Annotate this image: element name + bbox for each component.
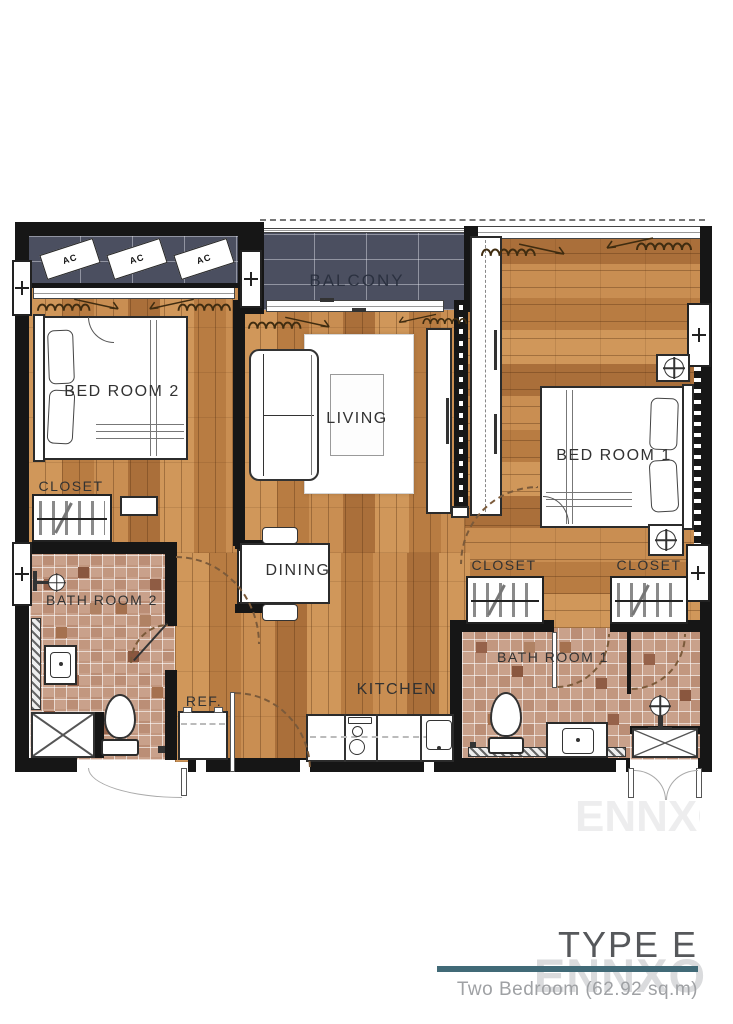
wall (15, 222, 245, 236)
curtain-icon (247, 314, 333, 334)
roof-overhang-dashed-line (260, 219, 705, 221)
wall (165, 670, 177, 760)
wardrobe (32, 494, 112, 542)
room-label-bedroom2: BED ROOM 2 (64, 383, 179, 401)
column-marker-icon (240, 250, 262, 308)
wall (28, 283, 242, 288)
pillow (649, 398, 679, 451)
room-label-bathroom1: BATH ROOM 1 (497, 649, 609, 665)
faucet-dot (437, 746, 441, 750)
wall (233, 300, 245, 546)
lamp-icon (656, 530, 676, 550)
counter-divider (344, 714, 346, 762)
cabinet-handle (494, 330, 497, 370)
wall-notch (616, 760, 626, 772)
stove-burner-small (352, 726, 363, 737)
shower-head-icon (650, 696, 670, 716)
x-cross-icon (634, 730, 696, 756)
bed-headboard-wall-ticks (694, 366, 701, 558)
room-label-closet-left: CLOSET (38, 478, 103, 494)
living-bedroom1-partition (454, 300, 468, 516)
service-shaft (31, 712, 95, 758)
room-label-dining: DINING (266, 562, 331, 580)
balcony-railing (262, 228, 468, 233)
accent-rule (437, 966, 698, 972)
blanket-line (96, 438, 184, 439)
wardrobe-door-split (485, 240, 486, 512)
curtain-icon (146, 296, 232, 316)
counter-divider (420, 714, 422, 762)
partition-end-cap (451, 506, 469, 518)
ac-unit-label: AC (128, 252, 145, 266)
shower-head-icon (48, 574, 65, 591)
curtain-icon (36, 296, 122, 316)
pillow (47, 330, 75, 385)
toilet-tank (488, 737, 524, 754)
blanket-line (96, 431, 184, 432)
hanger-icons (473, 583, 537, 617)
fridge-door-split (181, 723, 225, 725)
dining-chair (262, 604, 298, 621)
toilet-bowl (104, 694, 136, 739)
closet-drawer-unit (120, 496, 158, 516)
sliding-door-handle (352, 308, 366, 312)
wall-notch (196, 760, 206, 772)
column-marker-icon (12, 542, 32, 606)
sofa (249, 349, 319, 481)
blanket-line (546, 499, 632, 500)
wardrobe-tall (470, 236, 502, 516)
dining-chair (262, 527, 298, 544)
column-marker-icon (12, 260, 32, 316)
wall (25, 542, 175, 554)
pillow (649, 459, 680, 512)
cabinet-handle (494, 414, 497, 454)
floor-drain (158, 746, 165, 753)
exterior-door-swing-arc (88, 768, 182, 798)
lamp-icon (664, 358, 684, 378)
room-label-balcony: BALCONY (309, 271, 404, 291)
curtain-icon (594, 235, 702, 255)
stove-knob-panel (348, 717, 372, 724)
room-label-bathroom2: BATH ROOM 2 (46, 592, 158, 608)
floor-drain (470, 742, 476, 748)
shower-screen-hatch (31, 618, 41, 710)
column-marker-icon (686, 544, 710, 602)
hanger-icons (39, 501, 105, 535)
counter-divider (376, 714, 378, 762)
ac-unit-label: AC (195, 252, 212, 266)
ac-unit-label: AC (61, 252, 78, 266)
column-marker-icon (687, 303, 711, 367)
cabinet-handle (446, 398, 449, 444)
room-label-refrigerator: REF. (186, 693, 222, 709)
drain-dot (59, 662, 63, 666)
sliding-door-handle (320, 298, 334, 302)
plan-type-title: TYPE E (430, 924, 698, 966)
blanket-line (546, 492, 632, 493)
refrigerator (178, 711, 228, 760)
curtain-icon (480, 241, 568, 261)
toilet-bowl (490, 692, 522, 737)
toilet-tank (101, 739, 139, 756)
wall-bottom (15, 758, 77, 772)
drain-dot (576, 738, 580, 742)
wardrobe (610, 576, 688, 624)
sofa-front-edge (311, 355, 312, 475)
blanket-line (96, 424, 184, 425)
stove-burner-large (349, 739, 365, 755)
plan-subtitle: Two Bedroom (62.92 sq.m) (430, 979, 698, 1003)
room-label-bedroom1: BED ROOM 1 (556, 447, 671, 465)
entrance-shaft (632, 728, 698, 758)
room-label-kitchen: KITCHEN (357, 681, 438, 699)
floor-plan-canvas: AC AC AC (0, 0, 733, 1024)
x-cross-icon (33, 714, 93, 756)
curtain-icon (396, 310, 468, 330)
watermark-faint: ENNXO (575, 792, 700, 844)
room-label-closet-right: CLOSET (616, 557, 681, 573)
room-label-closet-middle: CLOSET (471, 557, 536, 573)
hanger-icons (617, 583, 681, 617)
room-label-living: LIVING (326, 410, 387, 428)
wardrobe (466, 576, 544, 624)
